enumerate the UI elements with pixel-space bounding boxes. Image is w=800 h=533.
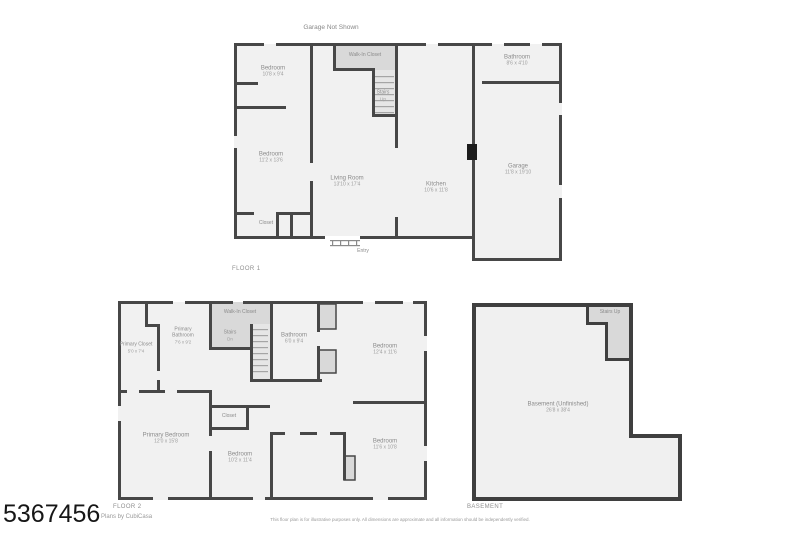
floor1-plan: Bedroom 10'8 x 9'4 Bedroom 11'2 x 13'6 C… (230, 40, 566, 276)
room-name: Primary Bathroom (163, 328, 203, 340)
room-label-stairs: Stairs Up (377, 91, 390, 102)
room-name: Walk-In Closet (224, 310, 256, 316)
plan-note: Garage Not Shown (281, 24, 381, 31)
room-dims: 11'8 x 19'10 (505, 171, 531, 177)
basement-plan: Basement (Unfinished) 26'8 x 38'4 Stairs… (465, 296, 690, 516)
room-dims: 10'6 x 11'8 (424, 189, 448, 195)
room-name: Primary Closet (119, 343, 153, 349)
room-label-bedroom: Bedroom 10'8 x 9'4 (261, 66, 285, 79)
room-label-stairs: Stairs Dn (224, 331, 237, 342)
room-label-garage: Garage 11'8 x 19'10 (505, 164, 531, 177)
room-label-bedroom: Bedroom 10'2 x 11'4 (228, 452, 252, 465)
room-dims: 5'0 x 7'4 (119, 348, 153, 353)
room-label-walk-in-closet: Walk-In Closet (349, 53, 381, 59)
room-dims: 26'8 x 38'4 (527, 409, 588, 415)
room-label-bedroom: Bedroom 11'2 x 13'6 (259, 152, 283, 165)
room-name: Stairs (377, 91, 390, 97)
room-label-bathroom: Bathroom 6'0 x 9'4 (281, 333, 307, 346)
disclaimer-text: This floor plan is for illustrative purp… (0, 517, 800, 522)
room-label-closet: Closet (222, 414, 236, 420)
room-label-primary-closet: Primary Closet 5'0 x 7'4 (119, 343, 153, 354)
room-name: Stairs (224, 331, 237, 337)
room-label-entry: Entry (357, 249, 369, 255)
room-name: Walk-In Closet (349, 53, 381, 59)
room-label-walk-in-closet: Walk-In Closet (224, 310, 256, 316)
floor2-title: FLOOR 2 (113, 504, 141, 510)
mls-number: 5367456 (3, 500, 100, 529)
room-label-closet: Closet (259, 221, 273, 227)
room-name: Closet (222, 414, 236, 420)
room-dims: 11'2 x 13'6 (259, 159, 283, 165)
room-dims: 12'0 x 15'8 (143, 440, 190, 446)
floor2-walls (113, 296, 433, 516)
room-label-bathroom: Bathroom 8'6 x 4'10 (504, 55, 530, 68)
room-label-bedroom: Bedroom 11'6 x 10'8 (373, 439, 397, 452)
room-label-basement: Basement (Unfinished) 26'8 x 38'4 (527, 402, 588, 415)
room-label-stairs-up: Stairs Up (600, 310, 621, 316)
room-label-kitchen: Kitchen 10'6 x 11'8 (424, 182, 448, 195)
room-label-bedroom: Bedroom 12'4 x 11'6 (373, 344, 397, 357)
room-label-primary-bathroom: Primary Bathroom 7'6 x 9'2 (163, 328, 203, 345)
room-label-primary-bedroom: Primary Bedroom 12'0 x 15'8 (143, 433, 190, 446)
basement-title: BASEMENT (467, 504, 503, 510)
floor1-title: FLOOR 1 (232, 266, 260, 272)
room-dims: 8'6 x 4'10 (504, 62, 530, 68)
room-label-living-room: Living Room 13'10 x 17'4 (330, 176, 363, 189)
floorplan-page: Garage Not Shown (0, 0, 800, 533)
room-dims: 6'0 x 9'4 (281, 340, 307, 346)
floor2-plan: Primary Closet 5'0 x 7'4 Primary Bathroo… (113, 296, 433, 516)
room-dims: 7'6 x 9'2 (163, 339, 203, 344)
room-dims: 11'6 x 10'8 (373, 446, 397, 452)
room-name: Stairs Up (600, 310, 621, 316)
room-name: Closet (259, 221, 273, 227)
room-dims: 10'8 x 9'4 (261, 73, 285, 79)
room-dims: Dn (224, 336, 237, 341)
room-dims: 13'10 x 17'4 (330, 183, 363, 189)
room-dims: Up (377, 96, 390, 101)
room-dims: 10'2 x 11'4 (228, 459, 252, 465)
room-name: Entry (357, 249, 369, 255)
room-dims: 12'4 x 11'6 (373, 351, 397, 357)
